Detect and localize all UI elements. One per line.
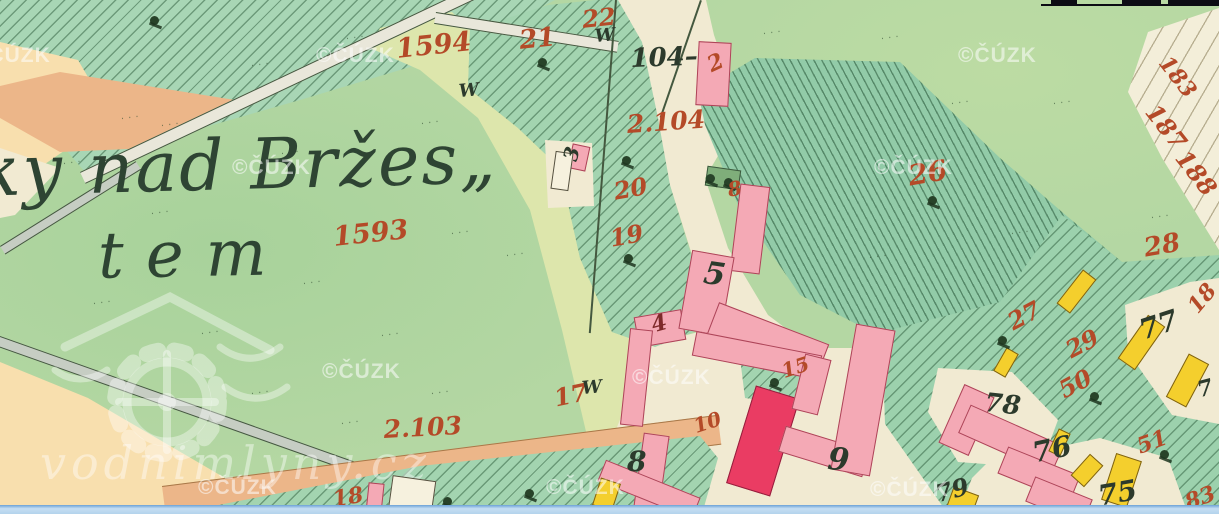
cuzk-watermark: ©ČÚZK [870,478,949,502]
house-number-black: 78 [983,390,1022,420]
cuzk-watermark: ©ČÚZK [232,156,311,180]
tree-symbol [523,489,539,503]
parcel-number-red: 28 [1142,230,1182,262]
meadow-texture-mark: ··· [504,249,527,261]
w-mark: W [458,81,480,101]
tree-symbol [536,58,552,72]
tree-symbol [926,196,942,210]
parcel-number-red: 21 [518,24,557,54]
meadow-texture-mark: ··· [449,227,472,239]
house-number-black: 9 [826,444,850,477]
tree-symbol [1088,392,1104,406]
parcel-number-red: 20 [612,174,649,203]
scale-bar-segment [1168,0,1219,6]
horizontal-scrollbar[interactable] [0,505,1219,514]
cuzk-watermark: ©ČÚZK [958,44,1037,68]
cuzk-watermark: ©ČÚZK [546,476,625,500]
meadow-texture-mark: ··· [879,32,902,44]
cuzk-watermark: ©ČÚZK [198,476,277,500]
tree-symbol [768,378,784,392]
parcel-number-red: 1594 [395,28,473,63]
parcel-number-red: 19 [608,221,645,250]
place-name-line2: tem [97,216,289,293]
meadow-texture-mark: ··· [761,27,784,39]
meadow-texture-mark: ··· [301,277,324,289]
cuzk-watermark: ©ČÚZK [632,366,711,390]
meadow-texture-mark: ··· [379,329,402,341]
tree-symbol [996,336,1012,350]
parcel-number-red: 2.104 [626,107,706,137]
cuzk-watermark: ©ČÚZK [874,156,953,180]
meadow-texture-mark: ··· [429,387,452,399]
w-mark: W [581,378,603,398]
meadow-texture-mark: ··· [149,207,172,219]
tree-symbol [704,174,720,188]
parcel-number-red: 1593 [332,216,410,251]
meadow-texture-mark: ··· [339,417,362,429]
scale-bar-segment [1051,0,1077,4]
cuzk-watermark: ©ČÚZK [322,360,401,384]
cadastral-map-canvas[interactable]: ky nad Bržes„ tem vodnimlyny.cz ········… [0,0,1219,514]
meadow-texture-mark: ··· [949,97,972,109]
scale-bar-segment [1122,0,1161,4]
cuzk-watermark: ©ČÚZK [316,44,395,68]
parcel-number-red: 2.103 [383,413,462,442]
house-number-black: 8 [627,448,646,476]
meadow-texture-mark: ··· [1051,97,1074,109]
meadow-texture-mark: ··· [1149,211,1172,223]
w-mark: W [594,26,616,46]
house-number-black: 5 [702,258,728,292]
tree-symbol [148,16,164,30]
cuzk-watermark: ©ČÚZK [0,44,51,68]
tree-symbol [620,156,636,170]
tree-symbol [622,254,638,268]
house-number-black: 76 [1030,432,1074,467]
house-number-black: 104– [630,44,698,72]
